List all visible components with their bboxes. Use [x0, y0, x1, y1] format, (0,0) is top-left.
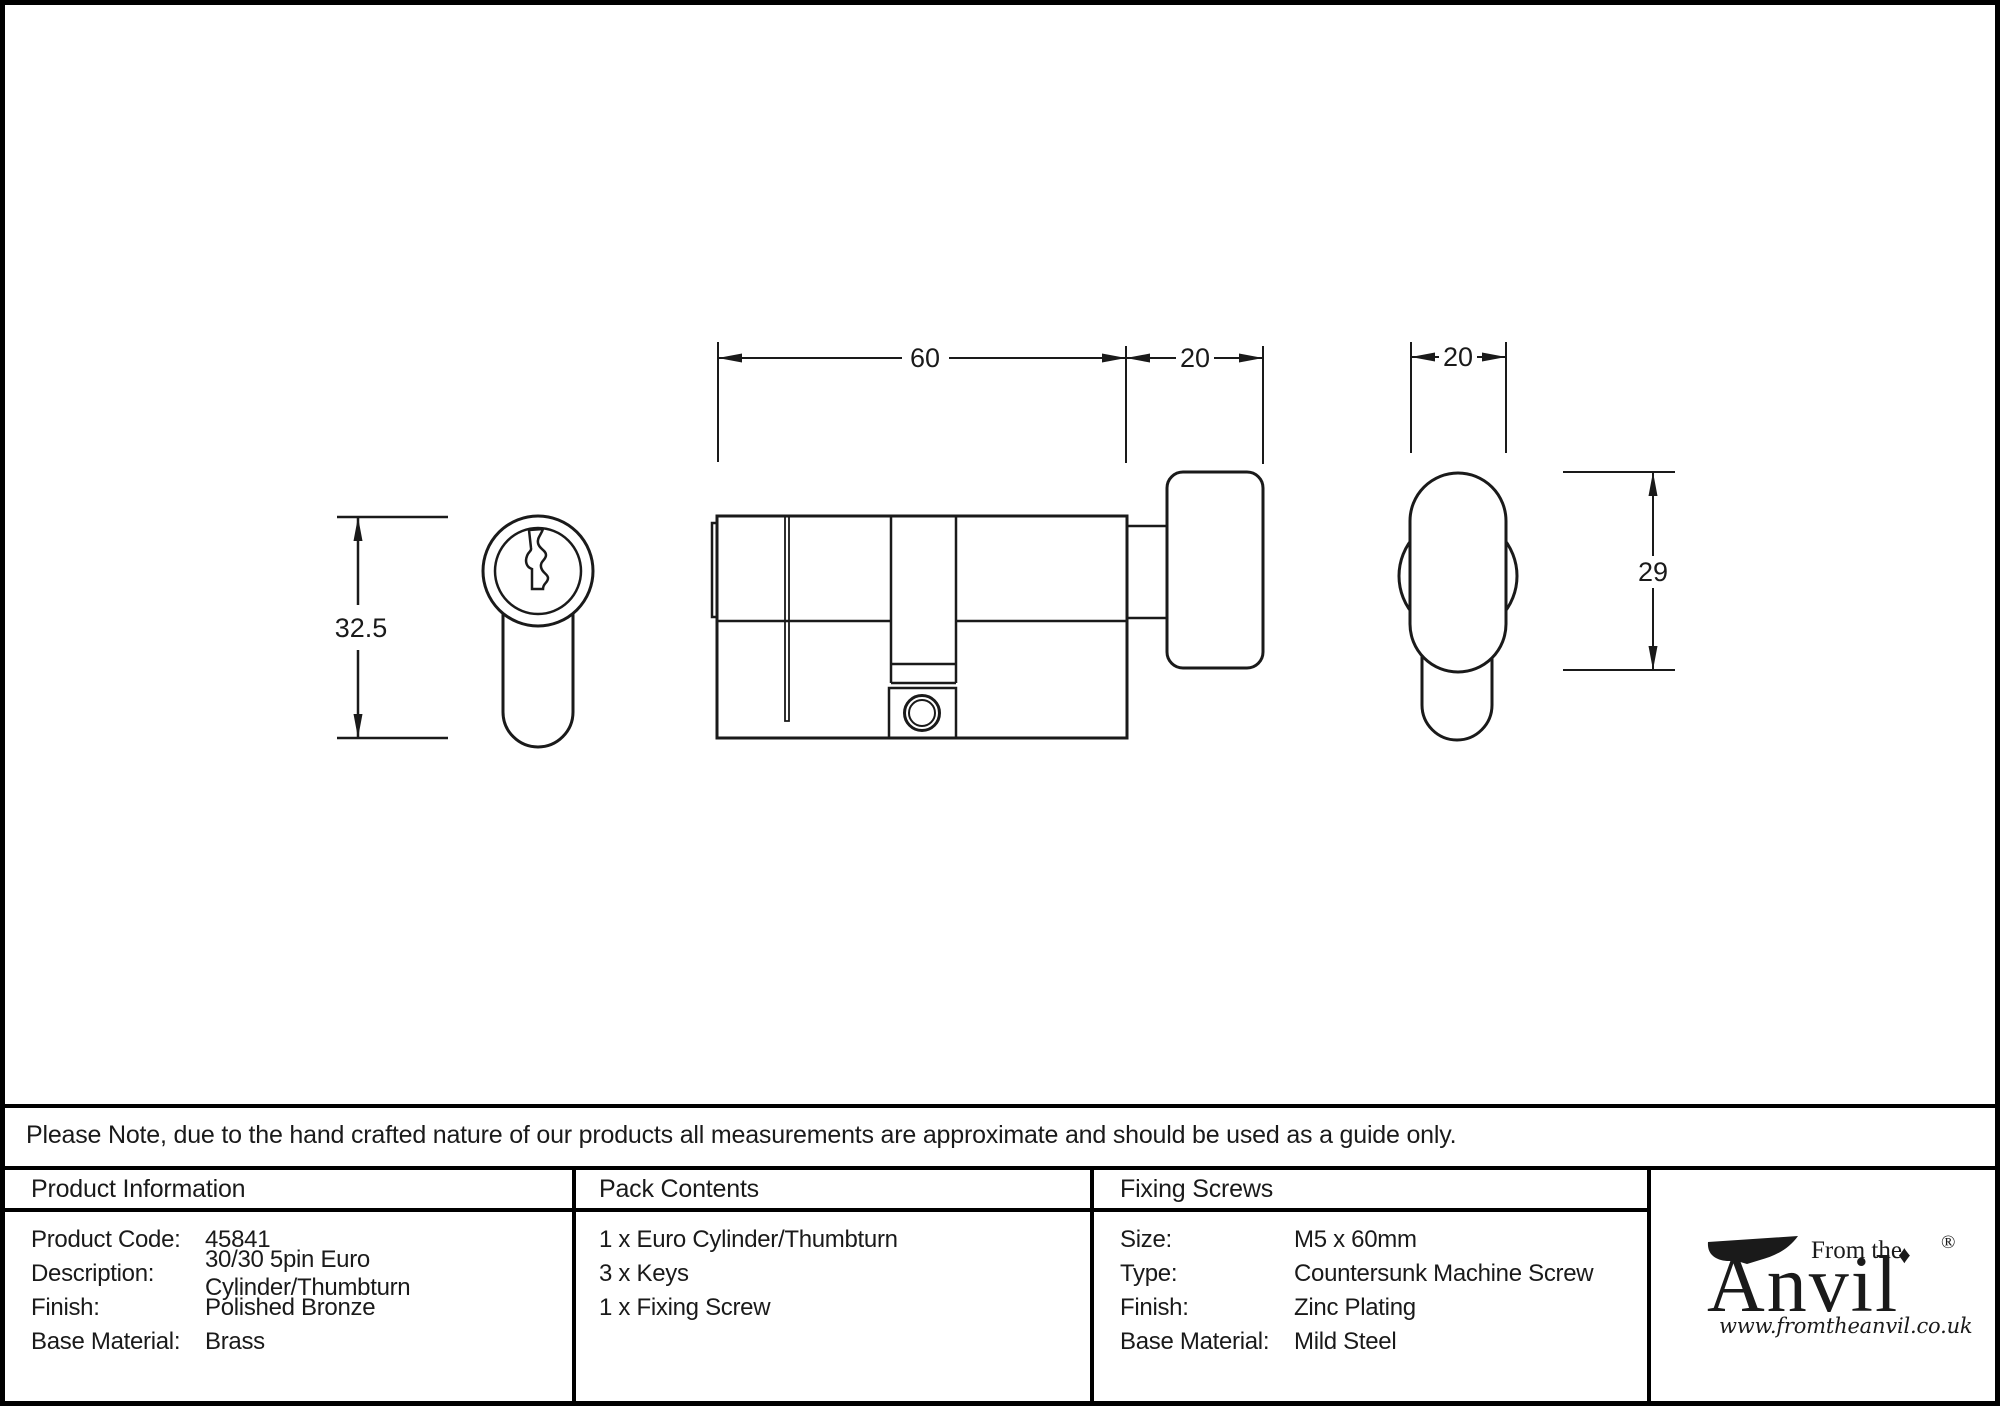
row-label: Base Material:	[1120, 1328, 1294, 1356]
thumbturn-barrel-circle	[1399, 517, 1517, 635]
cylinder-body	[717, 516, 1127, 738]
table-row: Finish: Zinc Plating	[1120, 1291, 1640, 1325]
row-value: Zinc Plating	[1294, 1294, 1416, 1322]
cylinder-front-edge	[712, 523, 717, 617]
registered-mark: ®	[1941, 1232, 1955, 1254]
dim-front-height: 32.5	[335, 517, 448, 738]
dim-label-knob-width: 20	[1443, 342, 1473, 372]
arrow-right-icon	[1102, 354, 1126, 363]
thumbturn-knob-front	[1410, 473, 1506, 672]
row-value: M5 x 60mm	[1294, 1226, 1417, 1254]
header-fixing-screws: Fixing Screws	[1120, 1170, 1273, 1208]
arrow-down-icon	[1649, 646, 1658, 670]
table-row: Base Material: Mild Steel	[1120, 1325, 1640, 1359]
row-label: Finish:	[1120, 1294, 1294, 1322]
row-label: Base Material:	[31, 1328, 205, 1356]
row-value: Brass	[205, 1328, 265, 1356]
brand-website: www.fromtheanvil.co.uk	[1719, 1314, 1972, 1338]
list-item: 1 x Fixing Screw	[599, 1291, 1079, 1325]
arrow-left-icon	[1126, 354, 1150, 363]
col-divider-2	[1090, 1166, 1094, 1406]
dim-label-front-height: 32.5	[335, 613, 388, 643]
brand-tagline: From the	[1811, 1237, 1902, 1265]
arrow-down-icon	[354, 714, 363, 738]
arrow-right-icon	[1239, 354, 1263, 363]
arrow-left-icon	[1411, 353, 1435, 362]
fixing-screw-hole-outer	[905, 696, 940, 731]
fixing-screw-block	[889, 688, 956, 738]
dim-knob-height: 29	[1563, 472, 1675, 670]
dim-body-length: 60	[718, 342, 1126, 463]
dim-label-knob-depth: 20	[1180, 343, 1210, 373]
cam-slot-lines	[891, 664, 956, 683]
arrow-up-icon	[354, 517, 363, 541]
header-product-information: Product Information	[31, 1170, 245, 1208]
row-label: Product Code:	[31, 1226, 205, 1254]
pack-contents-cell: 1 x Euro Cylinder/Thumbturn 3 x Keys 1 x…	[599, 1223, 1079, 1325]
thumbturn-neck	[1127, 526, 1167, 618]
front-view-key-face	[483, 516, 593, 747]
fixing-screws-cell: Size: M5 x 60mm Type: Countersunk Machin…	[1120, 1223, 1640, 1359]
keyway-profile	[526, 529, 548, 589]
header-pack-contents: Pack Contents	[599, 1170, 759, 1208]
arrow-left-icon	[718, 354, 742, 363]
dim-label-body-length: 60	[910, 343, 940, 373]
dim-knob-width: 20	[1411, 342, 1506, 453]
row-value: Polished Bronze	[205, 1294, 375, 1322]
pin-channel-line	[785, 516, 789, 721]
fixing-screw-hole-inner	[909, 700, 935, 726]
row-value: Mild Steel	[1294, 1328, 1396, 1356]
row-label: Finish:	[31, 1294, 205, 1322]
table-row: Description: 30/30 5pin Euro Cylinder/Th…	[31, 1257, 571, 1291]
arrow-up-icon	[1649, 472, 1658, 496]
list-item: 1 x Euro Cylinder/Thumbturn	[599, 1223, 1079, 1257]
table-row: Base Material: Brass	[31, 1325, 571, 1359]
side-view-cylinder	[712, 472, 1263, 738]
dim-knob-depth: 20	[1126, 343, 1263, 464]
front-view-thumbturn	[1399, 473, 1517, 740]
header-bottom-line	[5, 1208, 1649, 1212]
key-face-inner-circle	[495, 528, 581, 614]
col-divider-1	[572, 1166, 576, 1406]
spec-sheet-page: 32.5 60	[0, 0, 2000, 1406]
list-item: 3 x Keys	[599, 1257, 1079, 1291]
anvil-icon	[1706, 1235, 1803, 1265]
key-face-outer-circle	[483, 516, 593, 626]
thumbturn-tail	[1422, 605, 1492, 740]
measurement-note: Please Note, due to the hand crafted nat…	[26, 1104, 1986, 1166]
key-face-tail	[503, 613, 573, 747]
arrow-right-icon	[1482, 353, 1506, 362]
table-row: Type: Countersunk Machine Screw	[1120, 1257, 1640, 1291]
row-value: Countersunk Machine Screw	[1294, 1260, 1593, 1288]
row-label: Type:	[1120, 1260, 1294, 1288]
cam-section-sides	[891, 516, 956, 683]
table-row: Size: M5 x 60mm	[1120, 1223, 1640, 1257]
dim-label-knob-height: 29	[1638, 557, 1668, 587]
thumbturn-knob-side	[1167, 472, 1263, 668]
product-information-cell: Product Code: 45841 Description: 30/30 5…	[31, 1223, 571, 1359]
row-label: Size:	[1120, 1226, 1294, 1254]
diamond-icon: ♦	[1898, 1241, 1911, 1270]
row-label: Description:	[31, 1260, 205, 1288]
